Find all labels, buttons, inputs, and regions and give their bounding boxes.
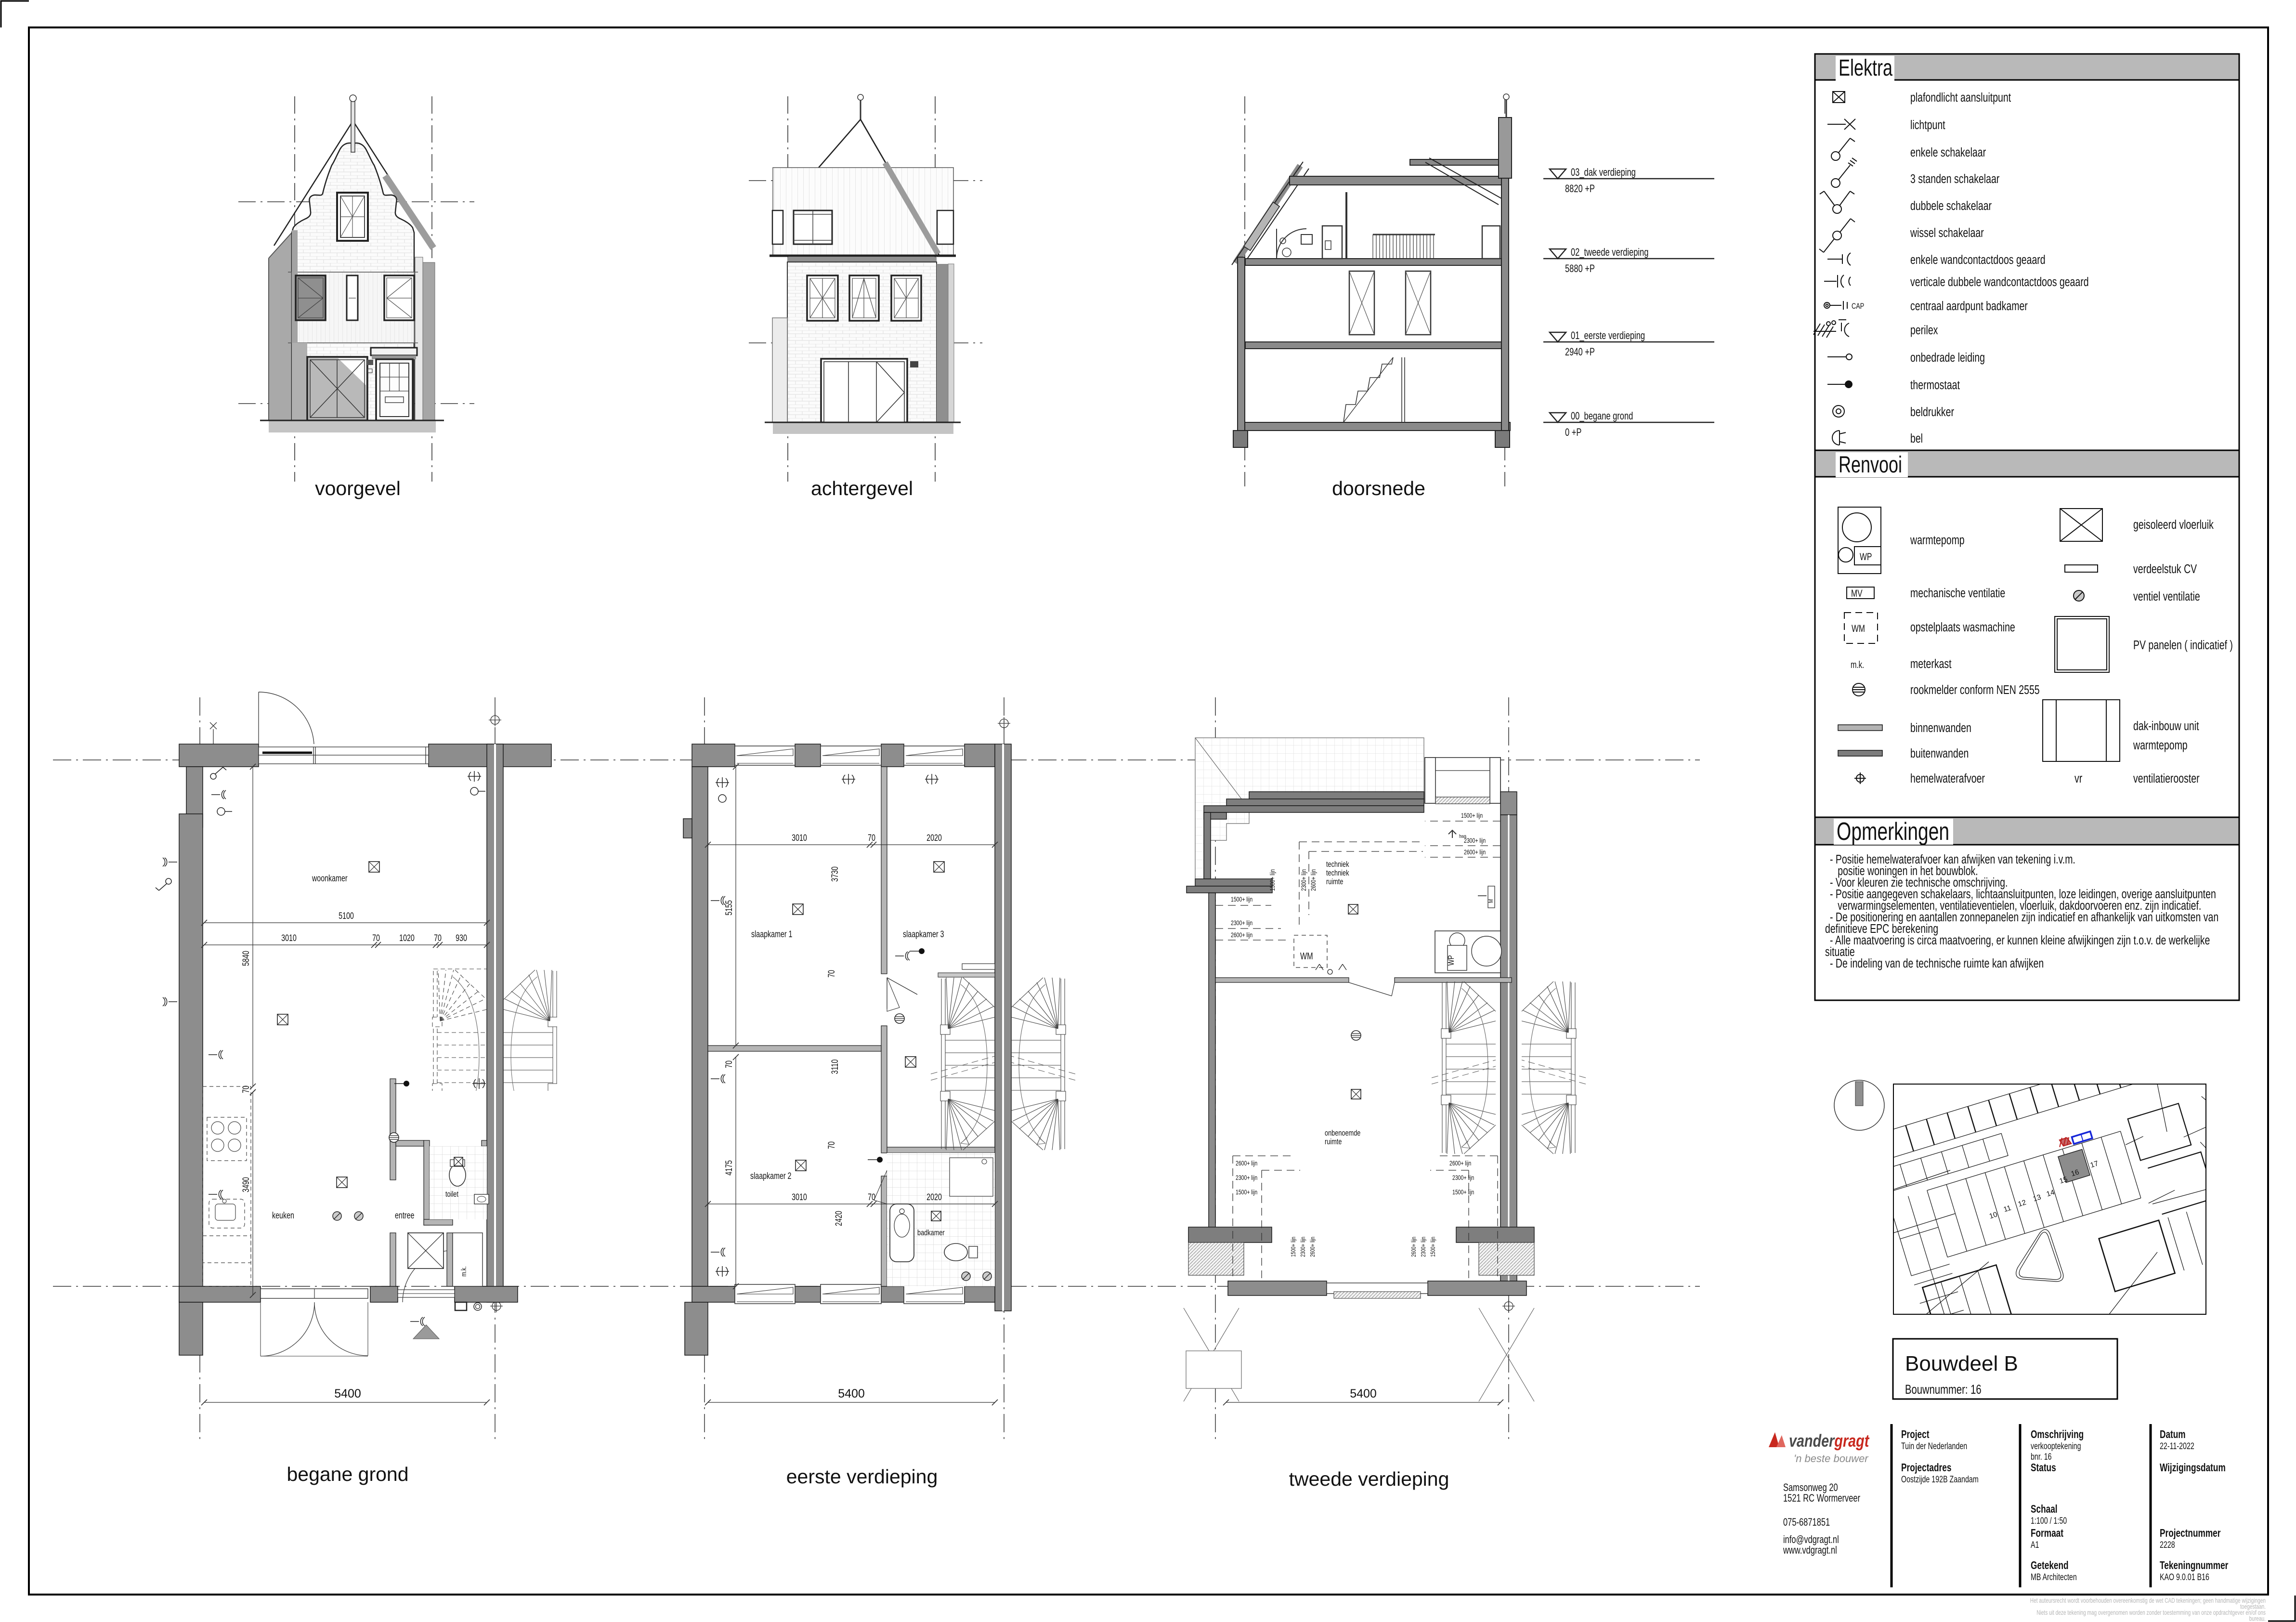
svg-text:perilex: perilex bbox=[1910, 323, 1938, 337]
svg-text:slaapkamer 3: slaapkamer 3 bbox=[903, 929, 944, 939]
svg-text:achtergevel: achtergevel bbox=[811, 477, 913, 499]
svg-text:2600+ lijn: 2600+ lijn bbox=[1310, 869, 1318, 891]
svg-text:3730: 3730 bbox=[830, 866, 840, 882]
svg-text:70: 70 bbox=[868, 833, 875, 843]
svg-text:Project: Project bbox=[1901, 1429, 1930, 1441]
svg-text:WP: WP bbox=[1860, 551, 1872, 562]
svg-text:075-6871851: 075-6871851 bbox=[1783, 1517, 1830, 1529]
svg-text:3110: 3110 bbox=[830, 1060, 840, 1074]
svg-text:woonkamer: woonkamer bbox=[312, 873, 348, 883]
svg-text:2300+ lijn: 2300+ lijn bbox=[1452, 1174, 1474, 1182]
svg-text:2228: 2228 bbox=[2160, 1540, 2175, 1550]
svg-text:1020: 1020 bbox=[399, 933, 415, 943]
svg-text:vandergragt: vandergragt bbox=[1789, 1431, 1869, 1451]
svg-text:beldrukker: beldrukker bbox=[1910, 405, 1954, 419]
svg-text:verdeelstuk CV: verdeelstuk CV bbox=[2133, 562, 2197, 576]
svg-text:3 standen schakelaar: 3 standen schakelaar bbox=[1910, 171, 2000, 185]
svg-text:badkamer: badkamer bbox=[917, 1228, 945, 1237]
svg-text:70: 70 bbox=[241, 1086, 251, 1093]
svg-text:- Alle maatvoering is circa m: - Alle maatvoering is circa maatvoering,… bbox=[1830, 933, 2210, 947]
svg-text:onbedrade leiding: onbedrade leiding bbox=[1910, 350, 1985, 364]
svg-text:22-11-2022: 22-11-2022 bbox=[2160, 1441, 2194, 1451]
svg-text:1500+ lijn: 1500+ lijn bbox=[1461, 812, 1483, 820]
svg-text:buitenwanden: buitenwanden bbox=[1910, 746, 1969, 760]
svg-text:CAP: CAP bbox=[1852, 301, 1864, 311]
svg-text:Omschrijving: Omschrijving bbox=[2031, 1429, 2084, 1441]
svg-text:70: 70 bbox=[868, 1192, 875, 1202]
svg-text:thermostaat: thermostaat bbox=[1910, 378, 1960, 392]
svg-text:Tuin der Nederlanden: Tuin der Nederlanden bbox=[1901, 1441, 1967, 1451]
svg-text:warmtepomp: warmtepomp bbox=[2133, 738, 2188, 752]
svg-text:5100: 5100 bbox=[339, 911, 354, 921]
svg-text:70: 70 bbox=[434, 933, 442, 943]
svg-text:slaapkamer 1: slaapkamer 1 bbox=[751, 929, 792, 939]
svg-text:hemelwaterafvoer: hemelwaterafvoer bbox=[1910, 771, 1985, 785]
svg-text:1500+ lijn: 1500+ lijn bbox=[1430, 1237, 1437, 1257]
svg-text:4175: 4175 bbox=[724, 1160, 734, 1176]
svg-text:1500+ lijn: 1500+ lijn bbox=[1236, 1189, 1257, 1196]
svg-text:techniek: techniek bbox=[1326, 860, 1349, 869]
svg-text:PV panelen ( indicatief ): PV panelen ( indicatief ) bbox=[2133, 638, 2233, 652]
svg-text:m.k.: m.k. bbox=[1851, 659, 1864, 670]
svg-text:voorgevel: voorgevel bbox=[315, 477, 401, 499]
svg-text:1500+ lijn: 1500+ lijn bbox=[1291, 1237, 1297, 1257]
svg-text:enkele schakelaar: enkele schakelaar bbox=[1910, 145, 1986, 159]
svg-text:3490: 3490 bbox=[241, 1177, 251, 1192]
svg-text:70: 70 bbox=[826, 1141, 836, 1149]
svg-text:verkooptekening: verkooptekening bbox=[2031, 1441, 2081, 1451]
svg-text:warmtepomp: warmtepomp bbox=[1910, 533, 1965, 547]
svg-text:bureau.: bureau. bbox=[2249, 1615, 2266, 1622]
svg-text:02_tweede verdieping: 02_tweede verdieping bbox=[1571, 247, 1648, 259]
svg-text:ventilatierooster: ventilatierooster bbox=[2133, 771, 2200, 785]
svg-text:lichtpunt: lichtpunt bbox=[1910, 118, 1945, 131]
svg-text:MV: MV bbox=[1851, 588, 1863, 599]
svg-text:5880 +P: 5880 +P bbox=[1565, 263, 1595, 275]
svg-text:Elektra: Elektra bbox=[1839, 55, 1892, 80]
svg-text:0 +P: 0 +P bbox=[1565, 427, 1581, 439]
svg-text:mechanische ventilatie: mechanische ventilatie bbox=[1910, 586, 2005, 600]
svg-text:70: 70 bbox=[826, 970, 836, 978]
svg-text:dubbele schakelaar: dubbele schakelaar bbox=[1910, 198, 1992, 212]
svg-text:Getekend: Getekend bbox=[2031, 1560, 2069, 1572]
svg-text:Bouwnummer: 16: Bouwnummer: 16 bbox=[1905, 1382, 1982, 1397]
svg-text:Wijzigingsdatum: Wijzigingsdatum bbox=[2160, 1462, 2226, 1474]
svg-text:5400: 5400 bbox=[838, 1387, 865, 1400]
svg-text:M: M bbox=[1488, 899, 1495, 903]
svg-text:KAO 9.0.01 B16: KAO 9.0.01 B16 bbox=[2160, 1572, 2209, 1582]
svg-text:slaapkamer 2: slaapkamer 2 bbox=[750, 1171, 791, 1181]
svg-text:Schaal: Schaal bbox=[2031, 1504, 2058, 1516]
svg-text:dak-inbouw unit: dak-inbouw unit bbox=[2133, 719, 2199, 733]
svg-text:1500+ lijn: 1500+ lijn bbox=[1452, 1189, 1474, 1196]
svg-text:ruimte: ruimte bbox=[1325, 1137, 1342, 1146]
svg-text:00_begane grond: 00_begane grond bbox=[1571, 410, 1633, 422]
svg-text:WP: WP bbox=[1447, 955, 1456, 966]
svg-text:2600+ lijn: 2600+ lijn bbox=[1231, 931, 1252, 939]
svg-text:2020: 2020 bbox=[926, 833, 942, 843]
svg-text:2600+ lijn: 2600+ lijn bbox=[1411, 1237, 1418, 1257]
svg-text:A1: A1 bbox=[2031, 1540, 2039, 1550]
svg-text:enkele wandcontactdoos geaard: enkele wandcontactdoos geaard bbox=[1910, 252, 2046, 266]
svg-text:entree: entree bbox=[395, 1210, 414, 1220]
svg-text:onbenoemde: onbenoemde bbox=[1325, 1128, 1360, 1138]
svg-text:Het auteursrecht wordt voorbeh: Het auteursrecht wordt voorbehouden over… bbox=[2030, 1597, 2266, 1605]
svg-text:- De indeling van de technisc: - De indeling van de technische ruimte k… bbox=[1830, 956, 2044, 970]
svg-text:tweede verdieping: tweede verdieping bbox=[1289, 1468, 1449, 1490]
svg-text:930: 930 bbox=[456, 933, 467, 943]
svg-text:2940 +P: 2940 +P bbox=[1565, 346, 1595, 358]
svg-text:WM: WM bbox=[1300, 951, 1313, 962]
svg-text:Status: Status bbox=[2031, 1462, 2056, 1474]
svg-text:2300+ lijn: 2300+ lijn bbox=[1236, 1174, 1257, 1182]
svg-text:rookmelder conform NEN 2555: rookmelder conform NEN 2555 bbox=[1910, 682, 2040, 696]
svg-text:WM: WM bbox=[1852, 623, 1865, 634]
svg-text:ruimte: ruimte bbox=[1326, 877, 1343, 886]
svg-text:Projectnummer: Projectnummer bbox=[2160, 1528, 2221, 1540]
svg-text:Bouwdeel B: Bouwdeel B bbox=[1905, 1352, 2018, 1375]
svg-text:8820 +P: 8820 +P bbox=[1565, 183, 1595, 195]
svg-text:70: 70 bbox=[724, 1060, 734, 1068]
svg-text:www.vdgragt.nl: www.vdgragt.nl bbox=[1783, 1544, 1837, 1557]
svg-text:centraal aardpunt badkamer: centraal aardpunt badkamer bbox=[1910, 299, 2028, 313]
svg-text:Tekeningnummer: Tekeningnummer bbox=[2160, 1560, 2228, 1572]
svg-text:1500+ lijn: 1500+ lijn bbox=[1231, 896, 1252, 903]
svg-text:1521 RC Wormerveer: 1521 RC Wormerveer bbox=[1783, 1492, 1861, 1504]
svg-text:MB Architecten: MB Architecten bbox=[2031, 1572, 2077, 1582]
svg-text:2300+ lijn: 2300+ lijn bbox=[1464, 837, 1486, 845]
svg-text:meterkast: meterkast bbox=[1910, 656, 1952, 670]
svg-text:hwa: hwa bbox=[1459, 834, 1467, 839]
svg-text:Renvooi: Renvooi bbox=[1839, 452, 1902, 477]
svg-text:2300+ lijn: 2300+ lijn bbox=[1231, 919, 1252, 927]
svg-text:ventiel ventilatie: ventiel ventilatie bbox=[2133, 589, 2200, 603]
svg-text:begane grond: begane grond bbox=[287, 1463, 408, 1485]
svg-text:toilet: toilet bbox=[445, 1190, 459, 1199]
svg-text:2300+ lijn: 2300+ lijn bbox=[1421, 1237, 1427, 1257]
svg-text:1500+ lijn: 1500+ lijn bbox=[1269, 869, 1277, 891]
svg-text:keuken: keuken bbox=[272, 1210, 294, 1220]
svg-text:opstelplaats wasmachine: opstelplaats wasmachine bbox=[1910, 620, 2015, 634]
svg-text:techniek: techniek bbox=[1326, 868, 1349, 877]
svg-text:5400: 5400 bbox=[334, 1387, 361, 1400]
svg-text:3010: 3010 bbox=[792, 833, 807, 843]
svg-text:verticale dubbele wandcontactd: verticale dubbele wandcontactdoos geaard bbox=[1910, 275, 2089, 288]
svg-text:3010: 3010 bbox=[281, 933, 297, 943]
svg-text:'n beste bouwer: 'n beste bouwer bbox=[1794, 1452, 1869, 1465]
svg-text:2300+ lijn: 2300+ lijn bbox=[1300, 1237, 1307, 1257]
svg-text:Opmerkingen: Opmerkingen bbox=[1837, 817, 1949, 845]
svg-text:binnenwanden: binnenwanden bbox=[1910, 720, 1971, 734]
svg-text:plafondlicht aansluitpunt: plafondlicht aansluitpunt bbox=[1910, 90, 2011, 104]
svg-text:Datum: Datum bbox=[2160, 1429, 2186, 1441]
svg-text:Formaat: Formaat bbox=[2031, 1528, 2063, 1540]
svg-text:2600+ lijn: 2600+ lijn bbox=[1464, 849, 1486, 856]
svg-text:01_eerste verdieping: 01_eerste verdieping bbox=[1571, 330, 1645, 342]
svg-text:doorsnede: doorsnede bbox=[1332, 477, 1425, 499]
svg-text:03_dak verdieping: 03_dak verdieping bbox=[1571, 167, 1636, 179]
svg-text:5155: 5155 bbox=[724, 900, 734, 916]
svg-text:2020: 2020 bbox=[926, 1192, 942, 1202]
svg-text:eerste verdieping: eerste verdieping bbox=[786, 1465, 938, 1488]
svg-text:geisoleerd vloerluik: geisoleerd vloerluik bbox=[2133, 517, 2214, 531]
svg-text:2300+ lijn: 2300+ lijn bbox=[1300, 869, 1308, 891]
svg-text:Oostzijde 192B Zaandam: Oostzijde 192B Zaandam bbox=[1901, 1474, 1979, 1484]
svg-text:m.k.: m.k. bbox=[459, 1266, 468, 1276]
svg-text:wissel schakelaar: wissel schakelaar bbox=[1910, 225, 1984, 239]
svg-text:5840: 5840 bbox=[241, 951, 251, 966]
svg-text:Projectadres: Projectadres bbox=[1901, 1462, 1951, 1474]
svg-text:3010: 3010 bbox=[792, 1192, 807, 1202]
svg-text:70: 70 bbox=[372, 933, 380, 943]
svg-text:2600+ lijn: 2600+ lijn bbox=[1310, 1237, 1317, 1257]
svg-text:bnr. 16: bnr. 16 bbox=[2031, 1452, 2052, 1462]
svg-text:5400: 5400 bbox=[1350, 1387, 1377, 1400]
svg-text:2600+ lijn: 2600+ lijn bbox=[1449, 1160, 1471, 1167]
svg-text:Niets uit deze tekening mag ov: Niets uit deze tekening mag overgenomen … bbox=[2036, 1609, 2266, 1617]
svg-text:vr: vr bbox=[2074, 771, 2083, 785]
svg-text:2600+ lijn: 2600+ lijn bbox=[1236, 1160, 1257, 1167]
svg-text:1:100 / 1:50: 1:100 / 1:50 bbox=[2031, 1516, 2067, 1526]
svg-text:2420: 2420 bbox=[834, 1211, 844, 1226]
svg-text:bel: bel bbox=[1910, 431, 1923, 445]
